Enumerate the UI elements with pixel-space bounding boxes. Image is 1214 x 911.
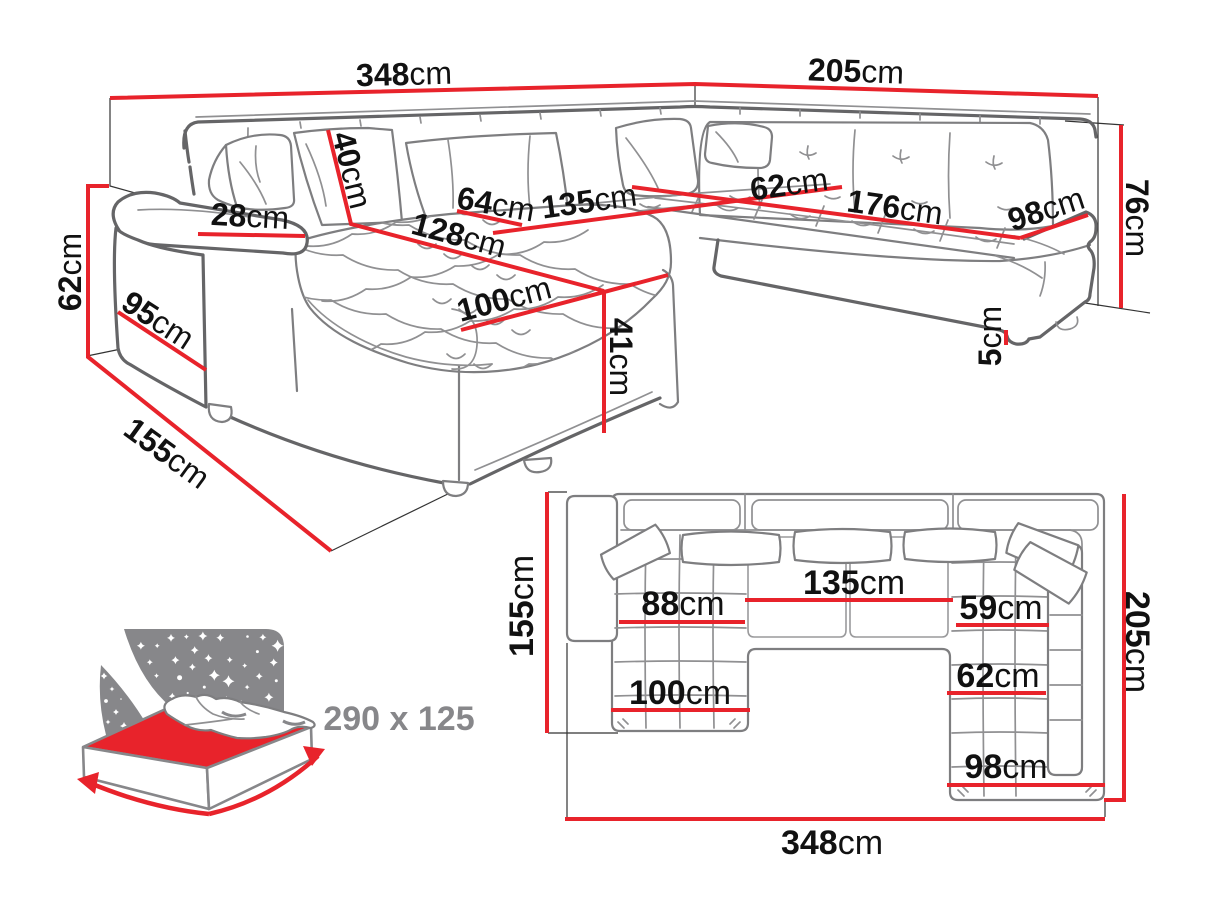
svg-text:59cm: 59cm: [959, 589, 1042, 627]
svg-text:348cm: 348cm: [356, 55, 453, 94]
svg-text:100cm: 100cm: [629, 674, 731, 712]
svg-text:5cm: 5cm: [972, 306, 1008, 366]
svg-text:205cm: 205cm: [807, 51, 904, 90]
svg-text:88cm: 88cm: [641, 585, 724, 623]
svg-text:41cm: 41cm: [603, 318, 639, 396]
svg-text:290 x 125: 290 x 125: [323, 700, 474, 738]
svg-text:348cm: 348cm: [781, 824, 883, 862]
svg-text:28cm: 28cm: [210, 196, 290, 236]
svg-text:62cm: 62cm: [52, 233, 88, 311]
svg-text:155cm: 155cm: [503, 555, 541, 657]
svg-text:205cm: 205cm: [1118, 591, 1156, 693]
svg-text:62cm: 62cm: [956, 657, 1039, 695]
svg-text:135cm: 135cm: [803, 564, 905, 602]
svg-text:98cm: 98cm: [964, 748, 1047, 786]
svg-text:76cm: 76cm: [1119, 179, 1155, 257]
